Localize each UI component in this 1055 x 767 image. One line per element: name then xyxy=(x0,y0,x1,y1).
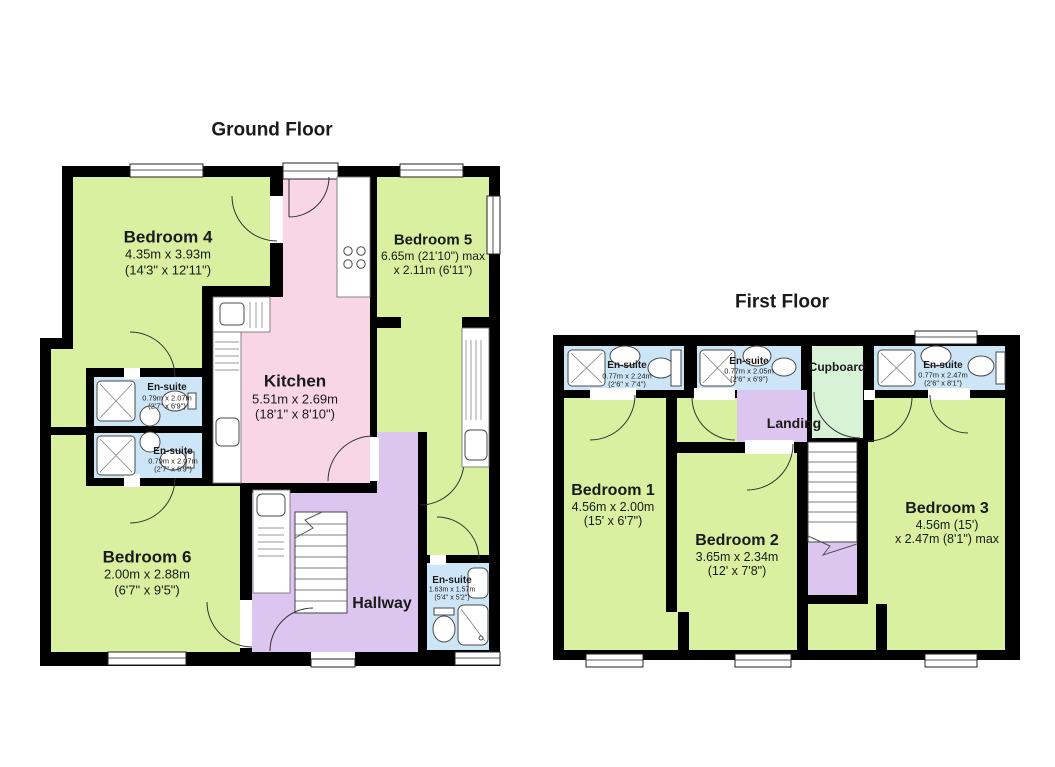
landing-name: Landing xyxy=(767,416,821,430)
first-stairs xyxy=(808,442,857,555)
bath-panel xyxy=(671,350,681,386)
kitchen-counter-right xyxy=(337,177,370,297)
ensuite3-imperial: (2'6" x 8'1") xyxy=(924,379,962,387)
kitchen-imperial: (18'1" x 8'10") xyxy=(255,408,335,421)
window-bedroom6 xyxy=(108,652,186,665)
cupboard-name: Cupboard xyxy=(809,361,866,373)
bedroom5-name: Bedroom 5 xyxy=(394,233,472,248)
door-gap-bedroom4 xyxy=(270,196,283,243)
wall-stub xyxy=(462,317,489,328)
door-gap-bedroom2 xyxy=(745,440,794,454)
door-gap-bedroom3 xyxy=(864,390,875,400)
door-gap-ensuite-hall xyxy=(430,555,446,565)
bedroom3-imperial: x 2.47m (8'1") max xyxy=(895,533,999,546)
floorplan-page: Ground Floor First Floor Bedroom 4 4.35m… xyxy=(0,0,1055,767)
toilet-icon xyxy=(433,616,455,642)
window-ensuite-hall xyxy=(455,652,500,665)
bedroom1-name: Bedroom 1 xyxy=(571,483,655,499)
ensuite1-name: En-suite xyxy=(607,361,646,371)
bedroom4-imperial: (14'3" x 12'11") xyxy=(125,264,211,277)
door-gap-ensuite-top xyxy=(124,368,140,379)
toilet-icon xyxy=(968,356,994,376)
ensuite-top-imperial: (2'7" x 6'9") xyxy=(148,402,186,410)
bedroom2-name: Bedroom 2 xyxy=(695,533,779,549)
toilet-tank-icon xyxy=(434,608,454,615)
window-bedroom5-side xyxy=(487,196,500,254)
bedroom2-imperial: (12' x 7'8") xyxy=(708,565,767,578)
bedroom2-passage xyxy=(677,398,737,442)
door-gap-ensuite-bottom xyxy=(124,474,140,487)
bedroom6-imperial: (6'7" x 9'5") xyxy=(114,584,180,597)
bedroom6-metric: 2.00m x 2.88m xyxy=(104,568,190,581)
door-gap-bedroom6 xyxy=(240,600,252,648)
ground-floor-title: Ground Floor xyxy=(211,121,332,140)
window-bedroom1 xyxy=(586,654,643,667)
window-ensuite3 xyxy=(915,331,977,344)
bedroom4-metric: 4.35m x 3.93m xyxy=(125,248,211,261)
bath-panel xyxy=(996,352,1005,384)
ensuite-hall-imperial: (5'4" x 5'2") xyxy=(434,595,469,602)
sink-icon xyxy=(465,430,487,460)
sink-icon xyxy=(257,494,285,516)
bedroom4-name: Bedroom 4 xyxy=(124,229,213,246)
toilet-icon xyxy=(772,358,796,376)
bedroom3-name: Bedroom 3 xyxy=(905,501,989,517)
kitchen-name: Kitchen xyxy=(264,373,326,390)
bedroom6-name: Bedroom 6 xyxy=(103,549,192,566)
kitchen-counter-left xyxy=(213,332,241,483)
kitchen-metric: 5.51m x 2.69m xyxy=(252,393,338,406)
ensuite-hall-name: En-suite xyxy=(432,576,471,586)
front-door-panel xyxy=(311,659,355,667)
window-bedroom4 xyxy=(130,164,203,177)
wall-stub xyxy=(377,317,401,328)
ensuite1-imperial: (2'6" x 7'4") xyxy=(608,380,646,388)
ground-stairs xyxy=(295,512,347,613)
door-gap-ensuite2 xyxy=(694,388,735,400)
sink-icon xyxy=(216,418,239,446)
ensuite-top-name: En-suite xyxy=(147,383,186,393)
bedroom5-metric: 6.65m (21'10") max xyxy=(381,250,485,262)
bedroom5-imperial: x 2.11m (6'11") xyxy=(394,264,473,276)
ensuite2-imperial: (2'6" x 6'9") xyxy=(730,375,768,383)
door-gap-kitchen xyxy=(370,437,379,481)
hallway-name: Hallway xyxy=(352,596,412,612)
window-bedroom5 xyxy=(400,164,463,177)
bedroom1-metric: 4.56m x 2.00m xyxy=(572,501,655,514)
kitchen-sink-icon xyxy=(220,303,244,325)
window-bedroom2 xyxy=(735,654,791,667)
window-bedroom3 xyxy=(925,654,977,667)
first-floor-title: First Floor xyxy=(735,293,829,312)
bedroom1-imperial: (15' x 6'7") xyxy=(584,515,643,528)
ensuite-bottom-imperial: (2'7" x 6'9") xyxy=(154,465,192,473)
bedroom3-metric: 4.56m (15') xyxy=(916,519,979,532)
drain-icon xyxy=(479,636,483,640)
ensuite-hall-metric: 1.63m x 1.57m xyxy=(429,587,475,594)
bedroom2-metric: 3.65m x 2.34m xyxy=(696,551,779,564)
door-gap-ensuite1 xyxy=(590,388,636,400)
toilet-icon xyxy=(648,358,674,378)
door-gap-ensuite3 xyxy=(928,388,970,400)
bedroom2-understairs xyxy=(808,604,876,650)
